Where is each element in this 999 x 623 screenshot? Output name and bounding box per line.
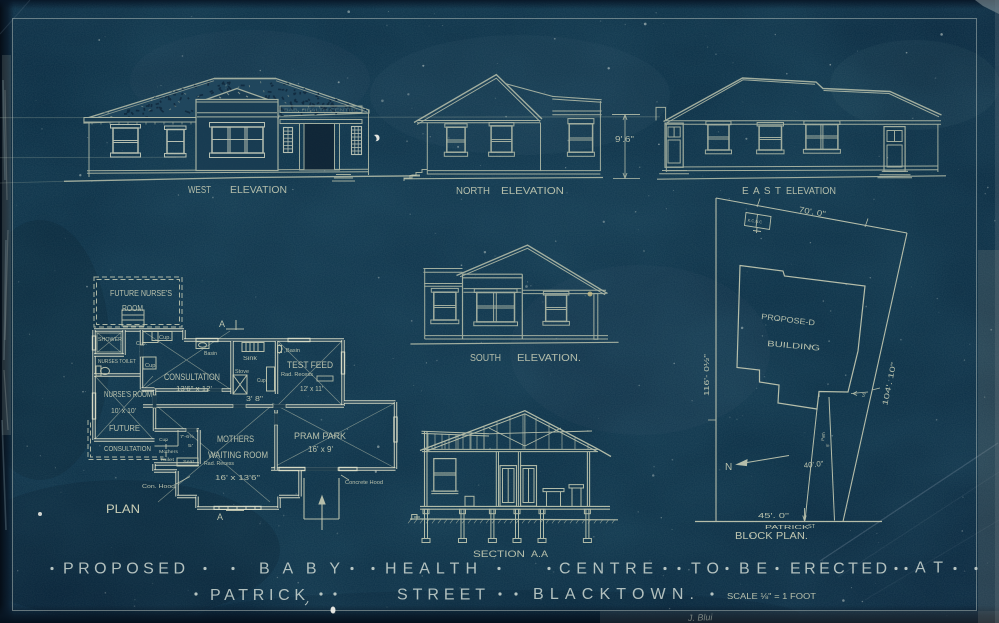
svg-text:16' x 9': 16' x 9': [308, 445, 333, 454]
svg-text:NORTH: NORTH: [456, 186, 490, 197]
svg-text:116'- 0½": 116'- 0½": [702, 354, 711, 396]
svg-text:Con. Hood: Con. Hood: [142, 484, 175, 490]
svg-text:PRAM PARK: PRAM PARK: [294, 431, 346, 441]
svg-text:A: A: [217, 512, 223, 522]
svg-text:NURSES TOILET: NURSES TOILET: [98, 359, 136, 365]
svg-text:3' 8": 3' 8": [246, 394, 263, 403]
svg-text:TEST FEED: TEST FEED: [287, 360, 333, 370]
svg-text:Stove: Stove: [235, 369, 249, 375]
svg-text:CONSULTATION: CONSULTATION: [104, 444, 151, 453]
svg-text:ELEVATION: ELEVATION: [786, 186, 836, 197]
svg-text:ROOM: ROOM: [122, 304, 143, 313]
svg-text:Cup.: Cup.: [257, 378, 267, 384]
svg-text:Concrete Hood: Concrete Hood: [345, 480, 383, 486]
svg-text:ST: ST: [808, 524, 816, 530]
svg-text:Basin: Basin: [204, 351, 217, 357]
svg-text:N: N: [725, 462, 732, 473]
svg-text:ELEVATION.: ELEVATION.: [517, 353, 581, 364]
svg-text:10' x 10': 10' x 10': [111, 406, 137, 415]
svg-text:PLAN: PLAN: [106, 502, 140, 516]
svg-text:FUTURE NURSE'S: FUTURE NURSE'S: [110, 289, 172, 298]
svg-text:BLOCK PLAN.: BLOCK PLAN.: [735, 530, 808, 542]
svg-text:MOTHERS: MOTHERS: [217, 434, 254, 444]
svg-text:9'.6": 9'.6": [615, 134, 634, 144]
svg-text:13'6" x 12': 13'6" x 12': [176, 384, 213, 393]
svg-text:FUTURE: FUTURE: [109, 424, 140, 433]
svg-text:SOUTH: SOUTH: [470, 353, 501, 364]
svg-text:SHOWER: SHOWER: [98, 337, 122, 343]
svg-text:Basin: Basin: [286, 348, 300, 354]
svg-text:Mothers: Mothers: [159, 449, 179, 454]
svg-text:WEST: WEST: [188, 185, 211, 196]
svg-text:5': 5': [188, 443, 193, 448]
svg-text:16' x 13'6": 16' x 13'6": [215, 473, 260, 482]
svg-text:Cup.: Cup.: [145, 363, 157, 369]
svg-text:Toilet: Toilet: [160, 457, 175, 462]
svg-text:BAB. HEALTH CENTRE: BAB. HEALTH CENTRE: [284, 108, 358, 113]
svg-text:SCALE ⅛" = 1 FOOT: SCALE ⅛" = 1 FOOT: [727, 591, 816, 601]
svg-text:Rad. Recess: Rad. Recess: [281, 372, 313, 378]
svg-text:ELEVATION: ELEVATION: [230, 185, 287, 196]
svg-text:Cup: Cup: [159, 437, 169, 442]
svg-text:A: A: [219, 319, 225, 329]
svg-text:Cup.: Cup.: [159, 335, 171, 341]
svg-text:45'. 0": 45'. 0": [758, 511, 789, 520]
svg-text:WAITING ROOM: WAITING ROOM: [208, 450, 268, 460]
svg-text:A.A: A.A: [531, 549, 549, 560]
svg-text:Seat: Seat: [183, 459, 195, 464]
svg-text:Rad. Recess: Rad. Recess: [204, 461, 235, 467]
svg-text:7'-6½: 7'-6½: [180, 433, 194, 439]
svg-text:NURSE'S ROOM: NURSE'S ROOM: [104, 390, 152, 399]
svg-text:Sink: Sink: [243, 356, 258, 362]
svg-text:CONSULTATION: CONSULTATION: [164, 372, 220, 382]
svg-text:3': 3': [862, 393, 866, 399]
svg-text:ELEVATION: ELEVATION: [501, 186, 564, 197]
svg-text:SECTION: SECTION: [473, 549, 525, 560]
svg-text:12' x 11': 12' x 11': [300, 384, 323, 393]
svg-text:J. Blui: J. Blui: [687, 612, 714, 623]
svg-text:Cup.: Cup.: [136, 341, 147, 347]
